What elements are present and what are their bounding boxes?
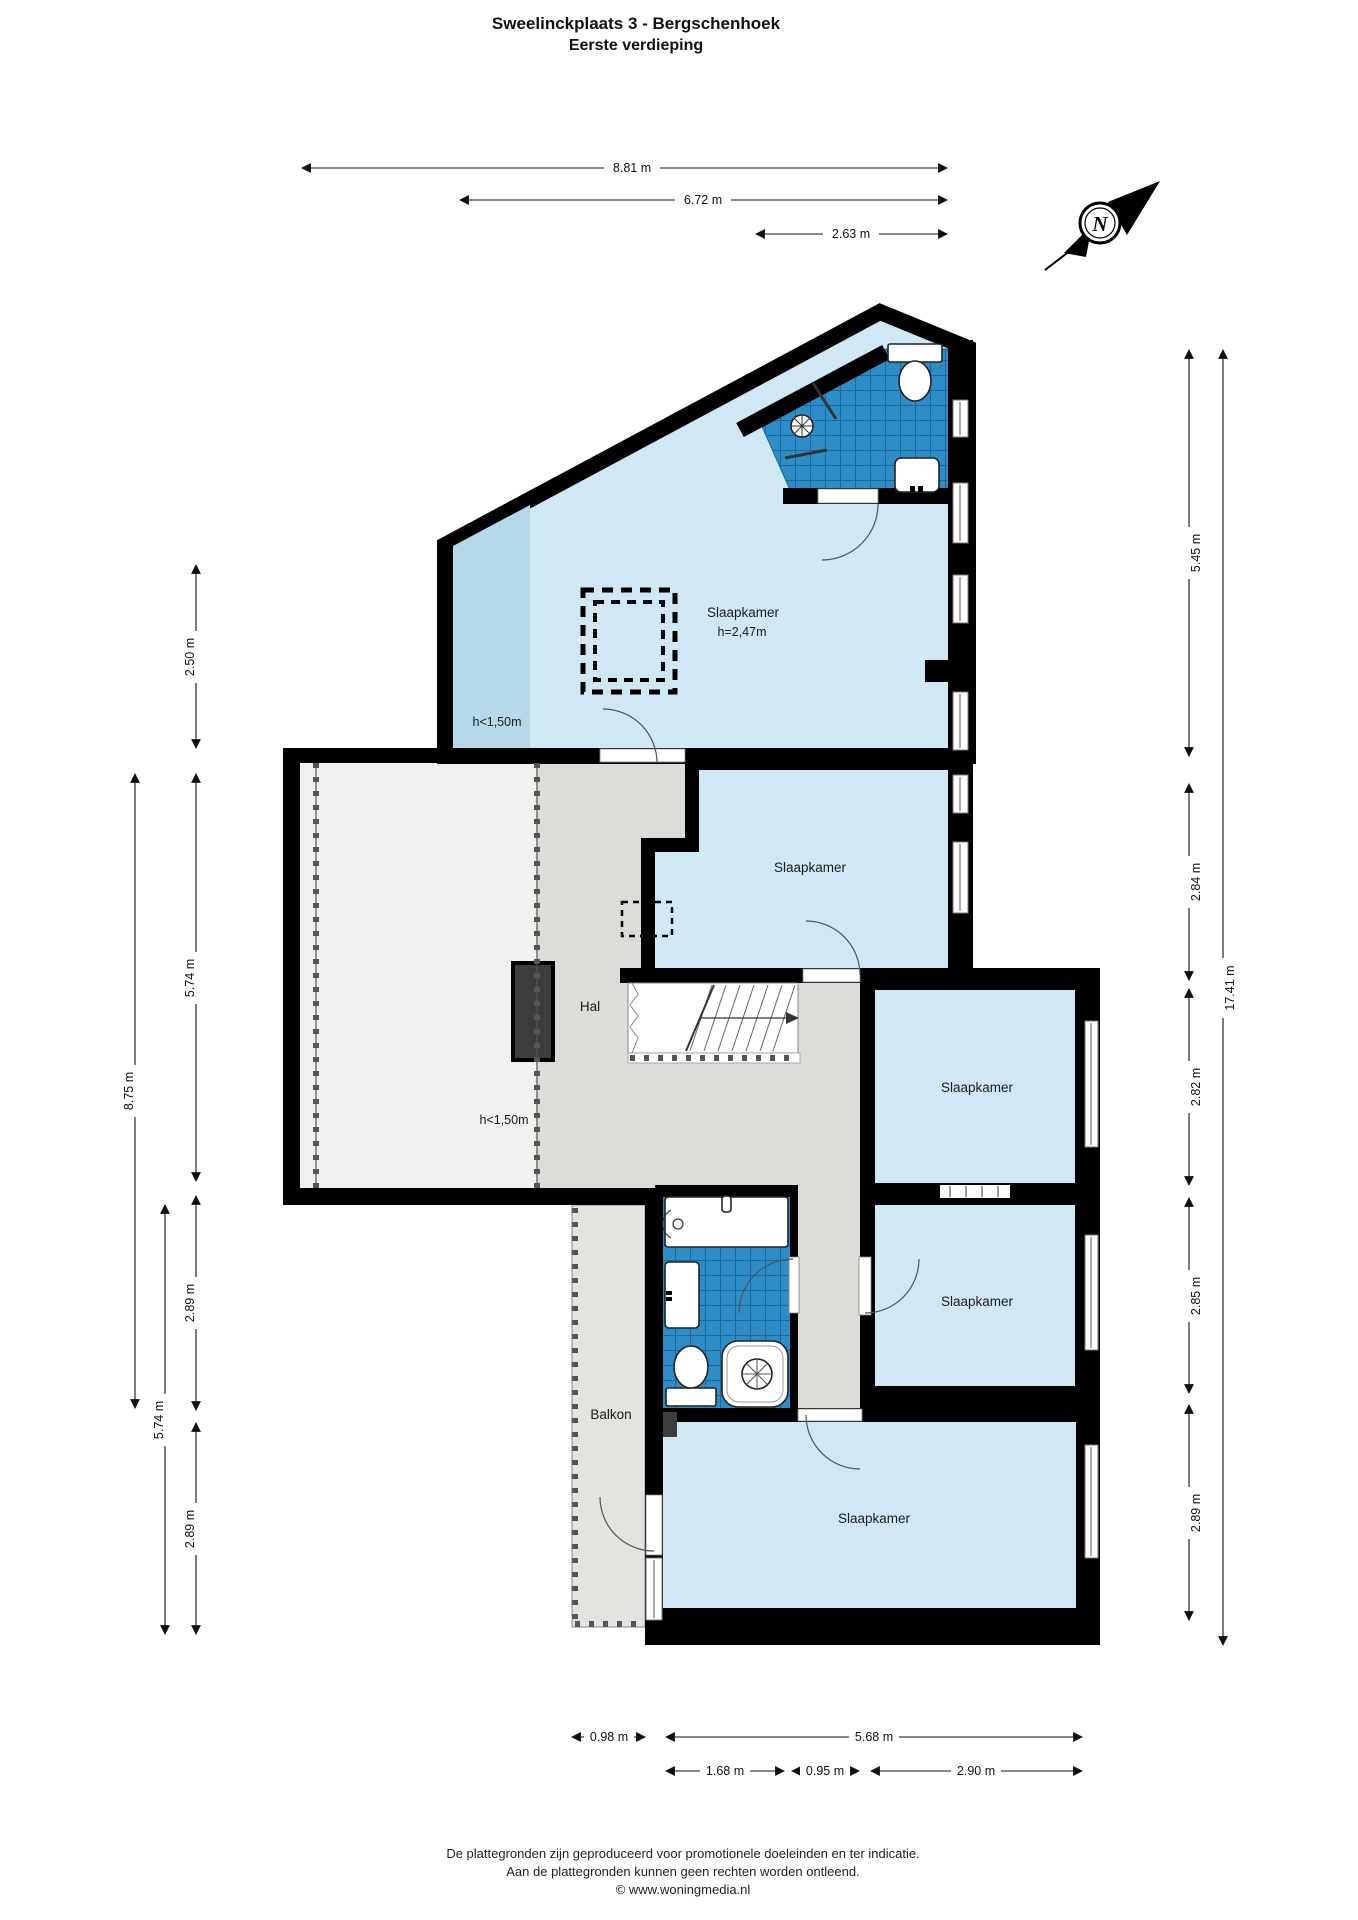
label-attic-ceiling-height: h=2,47m (718, 625, 767, 639)
washbasin-icon (895, 458, 939, 492)
dim-top-881: 8.81 m (613, 161, 651, 175)
dim-left-250: 2.50 m (183, 638, 197, 676)
compass-north-letter: N (1091, 212, 1108, 236)
dim-left-574a: 5.74 m (183, 959, 197, 997)
footer-line-3: © www.woningmedia.nl (616, 1882, 751, 1897)
staircase (628, 983, 800, 1063)
label-attic-bedroom: Slaapkamer (707, 605, 780, 620)
footer-line-1: De plattegronden zijn geproduceerd voor … (446, 1846, 919, 1861)
window (953, 575, 968, 623)
page-title: Sweelinckplaats 3 - Bergschenhoek (492, 14, 781, 33)
label-attic-low-height: h<1,50m (473, 715, 522, 729)
window (646, 1558, 662, 1620)
dim-left-289a: 2.89 m (183, 1284, 197, 1322)
dim-left-875: 8.75 m (122, 1072, 136, 1110)
label-bedroom-mid: Slaapkamer (774, 860, 847, 875)
window (1085, 1021, 1098, 1147)
dim-bottom-095: 0.95 m (806, 1764, 844, 1778)
interior-opening (940, 1185, 1010, 1198)
window (953, 400, 968, 437)
window (1085, 1445, 1098, 1558)
dim-bottom-290: 2.90 m (957, 1764, 995, 1778)
label-bedroom-bottom: Slaapkamer (838, 1511, 911, 1526)
bathtub-icon (663, 1196, 788, 1247)
floorplan-canvas: Sweelinckplaats 3 - Bergschenhoek Eerste… (0, 0, 1358, 1920)
compass-icon: N (1045, 181, 1160, 270)
label-hall: Hal (580, 999, 600, 1014)
attic-low-height-zone (453, 505, 530, 748)
dimension-lines-left: 2.50 m 5.74 m 8.75 m 2.89 m 5.74 m 2.89 … (121, 565, 197, 1634)
window (953, 842, 968, 913)
dim-right-545: 5.45 m (1189, 534, 1203, 572)
label-bedroom-right-lower: Slaapkamer (941, 1294, 1014, 1309)
dim-bottom-168: 1.68 m (706, 1764, 744, 1778)
dim-right-289: 2.89 m (1189, 1494, 1203, 1532)
dim-right-285: 2.85 m (1189, 1277, 1203, 1315)
washbasin-icon (665, 1262, 699, 1328)
dim-right-1741: 17.41 m (1223, 965, 1237, 1010)
label-bedroom-right-upper: Slaapkamer (941, 1080, 1014, 1095)
duct-block (663, 1412, 677, 1437)
dim-right-284: 2.84 m (1189, 863, 1203, 901)
dim-right-282: 2.82 m (1189, 1068, 1203, 1106)
label-balcony: Balkon (590, 1407, 631, 1422)
window (1085, 1235, 1098, 1350)
shower-tray-icon (722, 1341, 788, 1407)
window (953, 692, 968, 750)
window (953, 775, 968, 813)
floorplan-page: Sweelinckplaats 3 - Bergschenhoek Eerste… (0, 0, 1358, 1920)
dim-bottom-568: 5.68 m (855, 1730, 893, 1744)
chimney-block (513, 963, 553, 1060)
page-subtitle: Eerste verdieping (569, 37, 703, 54)
dimension-lines-right: 5.45 m 2.84 m 2.82 m 2.85 m 2.89 m 17.41… (1188, 350, 1237, 1645)
label-leftattic-low-height: h<1,50m (480, 1113, 529, 1127)
dim-left-289b: 2.89 m (183, 1510, 197, 1548)
dim-top-672: 6.72 m (684, 193, 722, 207)
dim-top-263: 2.63 m (832, 227, 870, 241)
dim-bottom-098: 0.98 m (590, 1730, 628, 1744)
footer-line-2: Aan de plattegronden kunnen geen rechten… (506, 1864, 859, 1879)
dimension-lines-bottom: 0.98 m 5.68 m 1.68 m 0.95 m 2.90 m (572, 1729, 1082, 1778)
dimension-lines-top: 8.81 m 6.72 m 2.63 m (302, 160, 947, 241)
window (953, 483, 968, 543)
dim-left-574b: 5.74 m (152, 1401, 166, 1439)
bathroom-bottom (663, 1196, 790, 1408)
